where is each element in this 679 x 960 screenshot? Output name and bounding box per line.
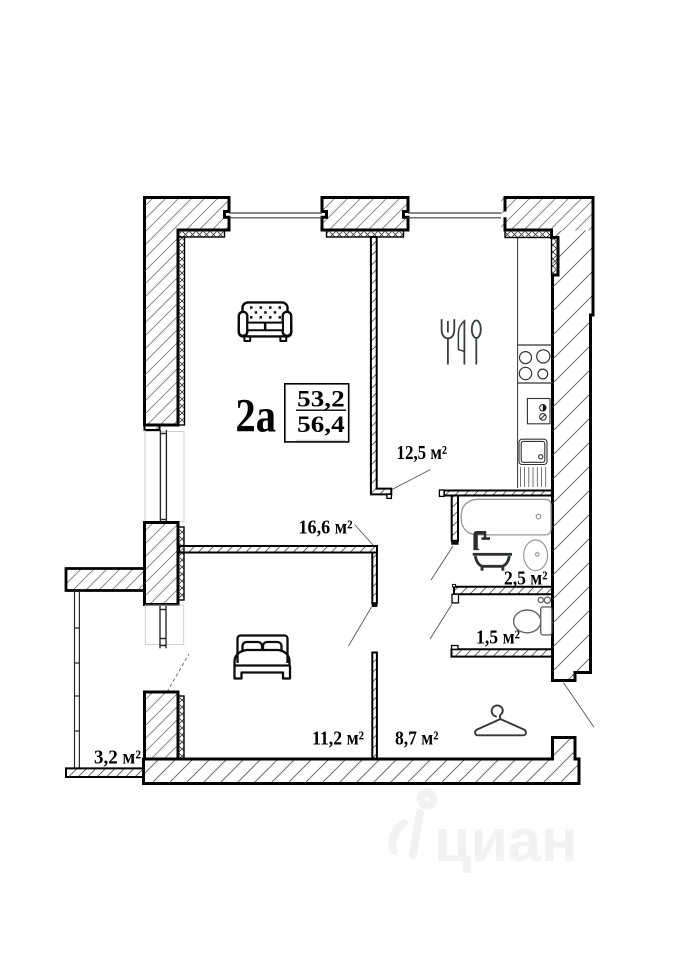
svg-text:2а: 2а xyxy=(236,390,277,443)
svg-text:16,6 м²: 16,6 м² xyxy=(299,517,353,539)
svg-text:53,2: 53,2 xyxy=(297,387,345,413)
svg-text:8,7 м²: 8,7 м² xyxy=(395,728,439,750)
svg-text:циан: циан xyxy=(434,807,577,874)
svg-text:1,5 м²: 1,5 м² xyxy=(476,628,520,649)
svg-text:56,4: 56,4 xyxy=(297,412,345,438)
svg-text:12,5 м²: 12,5 м² xyxy=(397,442,448,464)
svg-text:11,2 м²: 11,2 м² xyxy=(312,728,364,750)
svg-text:2,5 м²: 2,5 м² xyxy=(504,569,548,590)
svg-text:3,2 м²: 3,2 м² xyxy=(94,747,141,769)
